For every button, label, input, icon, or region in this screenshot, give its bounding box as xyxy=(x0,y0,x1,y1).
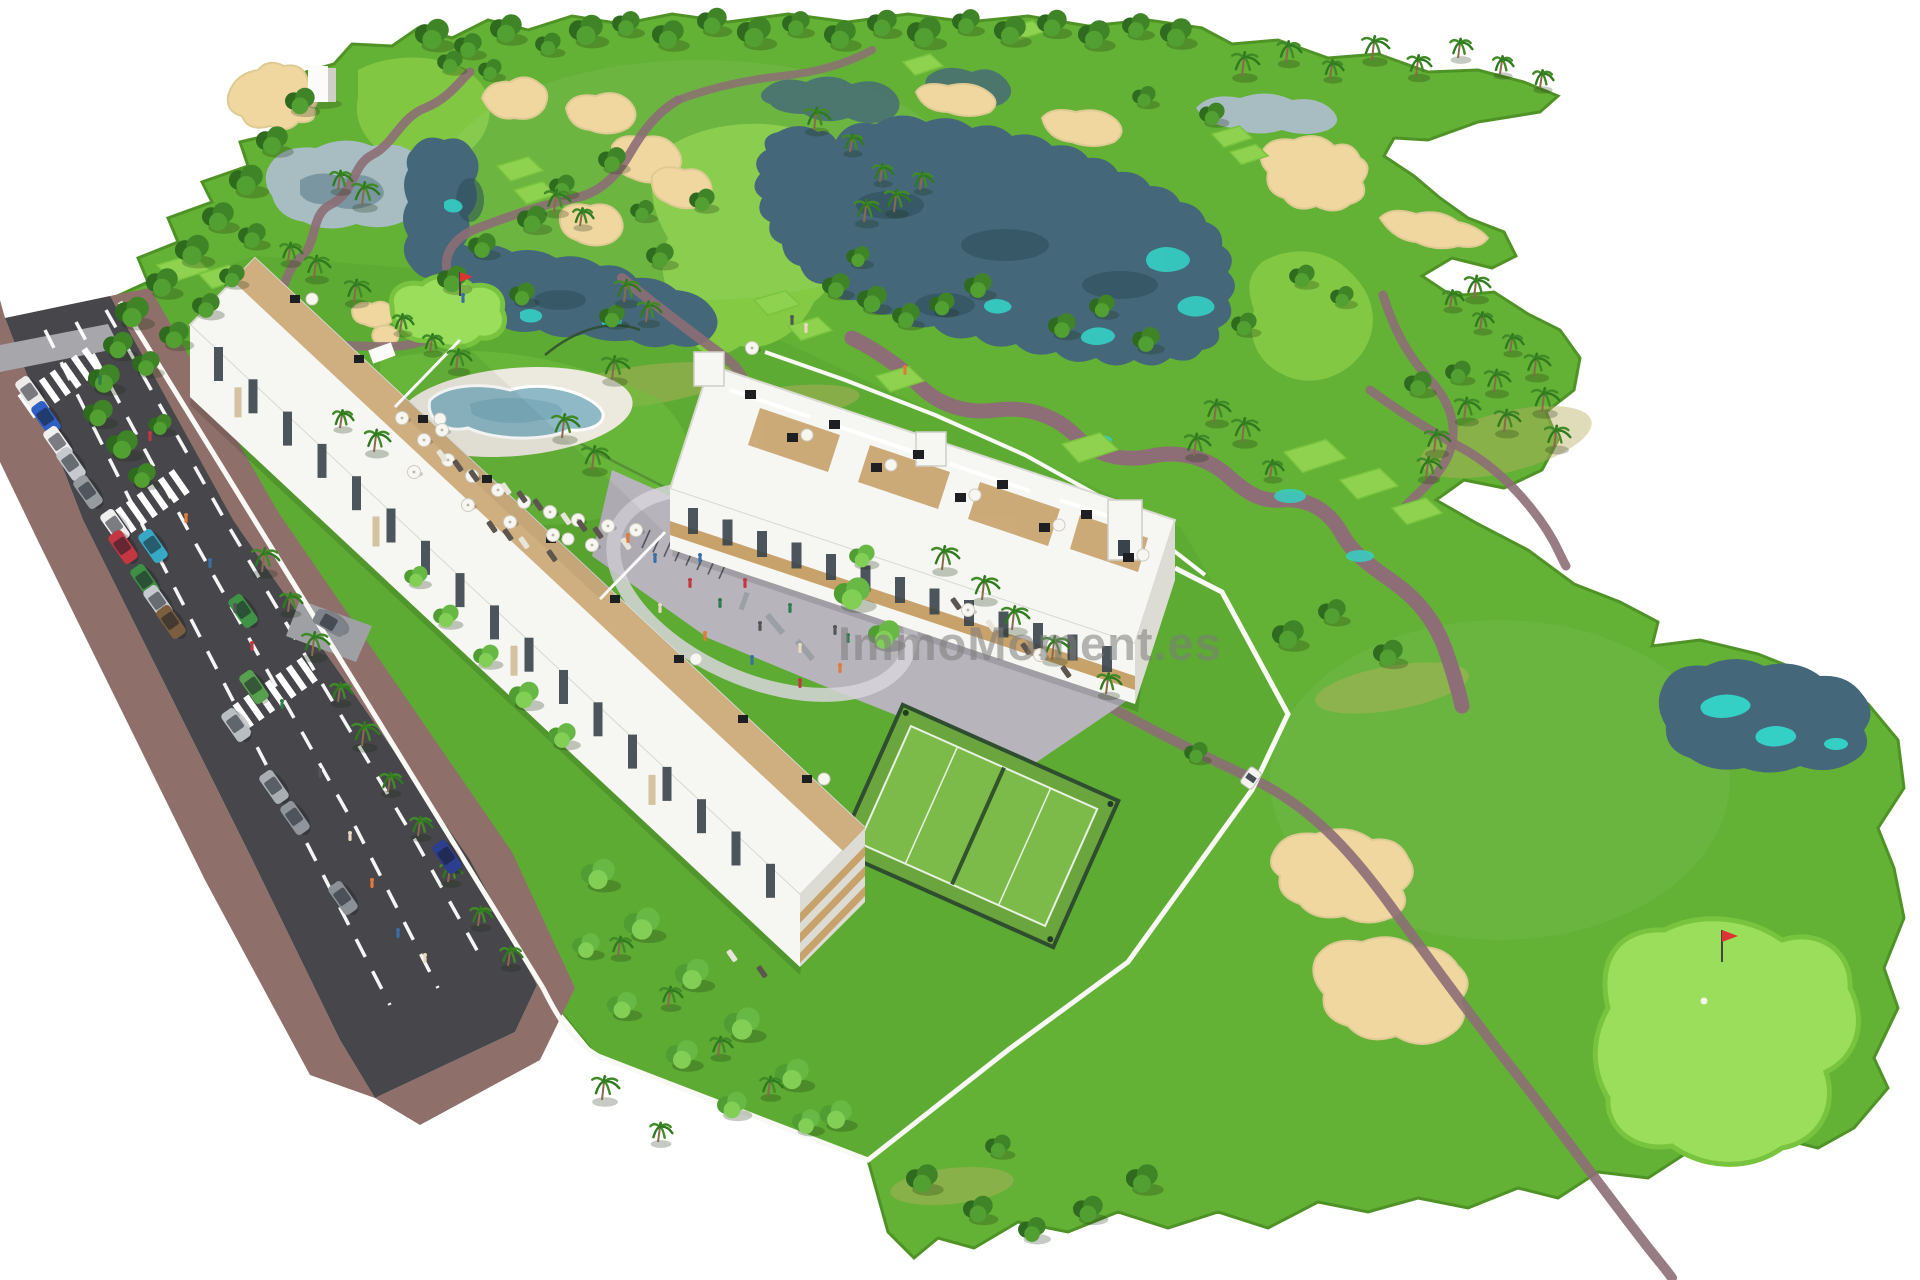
tree-foliage xyxy=(1133,1175,1151,1193)
person xyxy=(703,631,707,641)
parasol-pole xyxy=(401,417,404,420)
person-body xyxy=(698,557,701,564)
palm-shadow xyxy=(281,260,302,268)
tree-foliage xyxy=(827,1111,845,1129)
palm-shadow xyxy=(1451,56,1472,64)
tree-foliage xyxy=(1380,650,1397,667)
tree-foliage xyxy=(744,28,763,47)
palm-shadow xyxy=(552,435,578,445)
window xyxy=(283,412,292,446)
parasol-pole xyxy=(441,429,444,432)
person xyxy=(903,365,907,375)
person xyxy=(718,598,722,608)
balcony xyxy=(235,387,242,417)
tree-foliage xyxy=(652,252,668,268)
tree-foliage xyxy=(788,20,804,36)
parasol-pole xyxy=(552,534,555,537)
parasol-pole xyxy=(635,529,638,532)
person-head xyxy=(804,323,808,327)
balcony xyxy=(373,517,380,547)
rooftop-unit xyxy=(674,655,684,663)
palm-trunk xyxy=(658,1127,660,1142)
person-body xyxy=(750,659,753,666)
palm-shadow xyxy=(411,834,432,842)
palm-shadow xyxy=(1278,60,1300,68)
tree-foliage xyxy=(732,1019,752,1039)
tree-foliage xyxy=(1295,273,1309,287)
tree-foliage xyxy=(1044,20,1061,37)
tree-foliage xyxy=(588,870,607,889)
person-head xyxy=(688,578,692,582)
tree-foliage xyxy=(439,613,453,627)
person xyxy=(790,315,794,325)
tree-foliage xyxy=(704,18,721,35)
person xyxy=(798,678,802,688)
tree-foliage xyxy=(198,302,214,318)
person-body xyxy=(626,537,629,544)
tree-foliage xyxy=(614,1002,631,1019)
person xyxy=(788,603,792,613)
window xyxy=(930,589,940,615)
window xyxy=(249,379,258,413)
person-body xyxy=(743,582,746,589)
tree-foliage xyxy=(605,313,619,327)
palm-shadow xyxy=(1185,454,1209,463)
palm-trunk xyxy=(1458,43,1460,58)
person-head xyxy=(233,603,237,607)
tree-foliage xyxy=(724,1102,741,1119)
palm-shadow xyxy=(602,377,628,387)
tree-foliage xyxy=(1451,369,1465,383)
tree-foliage xyxy=(1167,29,1185,47)
parasol-pole xyxy=(509,521,512,524)
person-head xyxy=(790,315,794,319)
person xyxy=(250,641,254,651)
rooftop-unit xyxy=(745,390,756,399)
palm-tree xyxy=(1493,56,1513,79)
tree-foliage xyxy=(1128,22,1144,38)
watermark-text: ImmoMoment.es xyxy=(838,617,1222,670)
person xyxy=(750,655,754,665)
palm-shadow xyxy=(331,700,352,708)
tree-foliage xyxy=(659,31,677,49)
rooftop-unit xyxy=(610,595,620,603)
tree-foliage xyxy=(292,98,309,115)
tree-foliage xyxy=(958,18,974,34)
person-body xyxy=(318,772,321,779)
person-body xyxy=(790,319,793,326)
person-head xyxy=(98,375,102,379)
person xyxy=(318,768,322,778)
tree-foliage xyxy=(991,1143,1005,1157)
person-head xyxy=(833,625,837,629)
person xyxy=(798,643,802,653)
palm-shadow xyxy=(651,1140,672,1148)
roof-parasol xyxy=(1053,519,1065,531)
person-body xyxy=(833,629,836,636)
palm-shadow xyxy=(345,300,369,309)
person-body xyxy=(98,379,101,386)
person-head xyxy=(208,558,212,562)
parasol-pole xyxy=(751,347,754,350)
person-body xyxy=(703,635,706,642)
window xyxy=(456,573,465,607)
person xyxy=(758,621,762,631)
person-head xyxy=(758,621,762,625)
palm-shadow xyxy=(611,954,632,962)
person-head xyxy=(370,878,374,882)
window xyxy=(688,508,698,534)
person-head xyxy=(658,603,662,607)
person-head xyxy=(148,431,152,435)
golf-green-large xyxy=(1595,919,1858,1165)
person-head xyxy=(718,598,722,602)
palm-shadow xyxy=(252,569,278,579)
palm-shadow xyxy=(393,330,412,337)
person-head xyxy=(250,641,254,645)
tree-foliage xyxy=(831,31,849,49)
rooftop-unit xyxy=(997,480,1008,489)
parasol-pole xyxy=(467,504,470,507)
person-head xyxy=(318,768,322,772)
tree-foliage xyxy=(618,20,634,36)
person-body xyxy=(423,957,426,964)
tree-foliage xyxy=(516,692,533,709)
palm-shadow xyxy=(545,210,569,219)
person-body xyxy=(688,582,691,589)
palm-shadow xyxy=(448,368,470,376)
palm-shadow xyxy=(1418,476,1440,484)
palm-shadow xyxy=(1098,692,1120,700)
palm-shadow xyxy=(1545,446,1569,455)
tree-foliage xyxy=(604,156,620,172)
tree-foliage xyxy=(444,276,461,293)
person xyxy=(653,553,657,563)
tree-foliage xyxy=(864,296,881,313)
palm-shadow xyxy=(1408,74,1430,82)
window xyxy=(628,735,637,769)
window xyxy=(732,832,741,866)
palm-shadow xyxy=(592,1097,618,1107)
person-head xyxy=(348,831,352,835)
tree-foliage xyxy=(554,732,570,748)
parasol-pole xyxy=(497,489,500,492)
tree-foliage xyxy=(673,1051,691,1069)
palm-frond xyxy=(604,1082,610,1094)
tree-foliage xyxy=(134,472,150,488)
palm-shadow xyxy=(855,220,879,229)
aerial-render-page: ImmoMoment.es xyxy=(0,0,1920,1280)
rooftop-unit xyxy=(913,450,924,459)
tree-foliage xyxy=(474,242,490,258)
palm-shadow xyxy=(913,188,932,195)
tree-foliage xyxy=(225,273,239,287)
palm-shadow xyxy=(1443,306,1462,313)
person-body xyxy=(396,932,399,939)
rooftop-unit xyxy=(1123,553,1134,562)
palm-tree xyxy=(1450,39,1472,64)
person-head xyxy=(280,699,284,703)
person xyxy=(743,578,747,588)
person-body xyxy=(348,835,351,842)
tree-foliage xyxy=(497,25,515,43)
rooftop-unit xyxy=(787,433,798,442)
parasol-pole xyxy=(423,439,426,442)
palm-shadow xyxy=(1232,73,1258,83)
person-body xyxy=(903,369,906,376)
palm-shadow xyxy=(1533,86,1552,93)
tree-foliage xyxy=(122,308,141,327)
tree-foliage xyxy=(138,360,154,376)
palm-frond xyxy=(1502,60,1506,70)
person-head xyxy=(903,365,907,369)
parasol-pole xyxy=(413,471,416,474)
palm-shadow xyxy=(281,610,302,618)
tree-foliage xyxy=(635,208,648,221)
tree-foliage xyxy=(914,28,933,47)
person-head xyxy=(798,678,802,682)
palm-shadow xyxy=(1493,72,1512,79)
tree-foliage xyxy=(632,919,652,939)
tree-foliage xyxy=(1189,750,1202,763)
tree-foliage xyxy=(913,1175,931,1193)
tree-foliage xyxy=(935,301,949,315)
tree-foliage xyxy=(236,176,255,195)
person-body xyxy=(718,602,721,609)
person-body xyxy=(798,682,801,689)
tree-foliage xyxy=(182,246,201,265)
tree-foliage xyxy=(828,282,844,298)
person-body xyxy=(148,435,151,442)
tree-foliage xyxy=(1335,294,1348,307)
rooftop-unit xyxy=(418,415,428,423)
tree-foliage xyxy=(576,26,595,45)
window xyxy=(697,799,706,833)
tree-foliage xyxy=(1205,111,1219,125)
window xyxy=(757,531,767,557)
tree-foliage xyxy=(970,1206,987,1223)
roof-parasol xyxy=(818,773,830,785)
balcony xyxy=(511,646,518,676)
tree-foliage xyxy=(95,375,113,393)
tree-foliage xyxy=(209,213,227,231)
roof-parasol xyxy=(562,533,574,545)
tree-foliage xyxy=(541,41,555,55)
palm-shadow xyxy=(1532,409,1558,419)
tree-foliage xyxy=(422,30,441,49)
palm-shadow xyxy=(843,150,862,157)
person-body xyxy=(788,607,791,614)
palm-tree xyxy=(1533,70,1553,93)
window xyxy=(663,767,672,801)
tree-foliage xyxy=(1237,321,1251,335)
person xyxy=(698,553,702,563)
tree-foliage xyxy=(1137,94,1150,107)
window xyxy=(559,670,568,704)
window xyxy=(766,864,775,898)
palm-shadow xyxy=(333,426,352,433)
person xyxy=(658,603,662,613)
window xyxy=(490,605,499,639)
person-head xyxy=(698,553,702,557)
window xyxy=(594,702,603,736)
tree-foliage xyxy=(1095,303,1109,317)
pond-bottom-right xyxy=(1659,659,1871,773)
palm-shadow xyxy=(661,1004,682,1012)
window xyxy=(525,638,534,672)
tree-foliage xyxy=(113,441,131,459)
person-body xyxy=(280,703,283,710)
person xyxy=(688,578,692,588)
person-body xyxy=(461,297,464,304)
roof-parasol xyxy=(801,429,813,441)
person-head xyxy=(461,293,465,297)
window xyxy=(214,347,223,381)
palm-shadow xyxy=(423,350,442,357)
palm-shadow xyxy=(1232,439,1258,449)
palm-tree xyxy=(1362,36,1389,67)
tree-foliage xyxy=(443,59,457,73)
rooftop-unit xyxy=(1039,523,1050,532)
palm-tree xyxy=(650,1123,672,1148)
palm-shadow xyxy=(1485,390,1509,399)
palm-frond xyxy=(660,1127,665,1138)
palm-tree xyxy=(1465,276,1490,305)
person-head xyxy=(750,655,754,659)
person-head xyxy=(626,533,630,537)
tree-foliage xyxy=(1024,1226,1040,1242)
rooftop-unit xyxy=(482,475,492,483)
roof-parasol xyxy=(306,293,318,305)
person-body xyxy=(758,625,761,632)
palm-shadow xyxy=(365,450,389,459)
parasol-pole xyxy=(591,544,594,547)
tree-foliage xyxy=(874,20,891,37)
person xyxy=(396,928,400,938)
parasol-pole xyxy=(607,525,610,528)
tree-foliage xyxy=(1279,631,1297,649)
palm-shadow xyxy=(761,1094,782,1102)
person-body xyxy=(658,607,661,614)
tree-foliage xyxy=(1410,380,1426,396)
tree-foliage xyxy=(855,553,869,567)
palm-shadow xyxy=(1473,328,1492,335)
person-body xyxy=(804,327,807,334)
palm-tree xyxy=(592,1076,619,1107)
person xyxy=(98,375,102,385)
rooftop-unit xyxy=(1081,510,1092,519)
person xyxy=(208,558,212,568)
person xyxy=(280,699,284,709)
tree-foliage xyxy=(970,282,986,298)
tree-foliage xyxy=(483,67,496,80)
person xyxy=(370,878,374,888)
tree-foliage xyxy=(695,197,709,211)
person-body xyxy=(250,645,253,652)
window xyxy=(723,520,733,546)
palm-shadow xyxy=(638,320,660,328)
person-head xyxy=(788,603,792,607)
tree-foliage xyxy=(1001,27,1019,45)
tree-foliage xyxy=(1324,608,1340,624)
window xyxy=(318,444,327,478)
tree-foliage xyxy=(263,137,281,155)
tree-foliage xyxy=(153,422,166,435)
window xyxy=(895,577,905,603)
parasol-pole xyxy=(549,511,552,514)
tree-foliage xyxy=(682,970,701,989)
person-head xyxy=(743,578,747,582)
tree-foliage xyxy=(515,291,529,305)
person xyxy=(804,323,808,333)
palm-shadow xyxy=(1465,296,1489,305)
tree-foliage xyxy=(409,574,422,587)
palm-shadow xyxy=(1263,476,1282,483)
palm-shadow xyxy=(305,276,329,285)
tree-foliage xyxy=(578,942,594,958)
palm-shadow xyxy=(1495,430,1519,439)
palm-shadow xyxy=(573,224,592,231)
tree-foliage xyxy=(782,1070,801,1089)
person-body xyxy=(233,607,236,614)
tree-foliage xyxy=(479,653,493,667)
window xyxy=(792,543,802,569)
window xyxy=(352,476,361,510)
palm-shadow xyxy=(932,567,958,577)
palm-frond xyxy=(1542,74,1546,84)
rooftop-unit xyxy=(290,295,300,303)
tree-foliage xyxy=(166,332,183,349)
person-body xyxy=(798,647,801,654)
palm-shadow xyxy=(1455,418,1479,427)
window xyxy=(387,509,396,543)
palm-frond xyxy=(1476,281,1481,293)
person xyxy=(348,831,352,841)
person-body xyxy=(208,562,211,569)
palm-shadow xyxy=(302,653,328,663)
palm-shadow xyxy=(381,790,402,798)
palm-shadow xyxy=(1205,420,1229,429)
palm-shadow xyxy=(331,188,352,196)
person xyxy=(833,625,837,635)
palm-shadow xyxy=(501,964,522,972)
tree-foliage xyxy=(898,312,914,328)
person-head xyxy=(423,953,427,957)
palm-shadow xyxy=(441,880,462,888)
palm-shadow xyxy=(885,210,909,219)
person xyxy=(461,293,465,303)
person-body xyxy=(184,517,187,524)
tree-foliage xyxy=(1080,1206,1097,1223)
palm-shadow xyxy=(873,180,892,187)
tree-foliage xyxy=(244,232,260,248)
rooftop-unit xyxy=(802,775,812,783)
palm-shadow xyxy=(711,1054,732,1062)
person-head xyxy=(396,928,400,932)
tree-foliage xyxy=(90,410,107,427)
tree-foliage xyxy=(153,279,171,297)
person-head xyxy=(653,553,657,557)
tree-foliage xyxy=(842,589,862,609)
roof-parasol xyxy=(969,489,981,501)
palm-shadow xyxy=(972,597,998,607)
rooftop-unit xyxy=(829,420,840,429)
roof-parasol xyxy=(1137,549,1149,561)
tree-foliage xyxy=(524,216,541,233)
palm-shadow xyxy=(352,743,378,753)
palm-shadow xyxy=(352,203,378,213)
tree-foliage xyxy=(851,254,864,267)
